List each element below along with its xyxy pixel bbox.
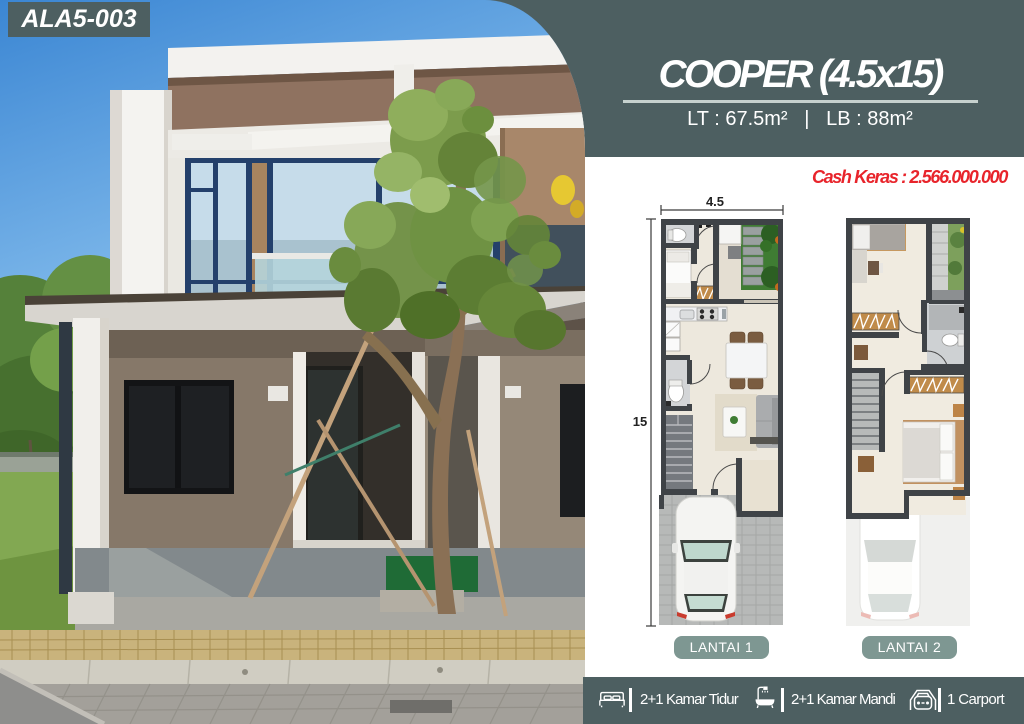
- svg-text:4.5: 4.5: [706, 194, 724, 209]
- svg-text:15: 15: [633, 414, 647, 429]
